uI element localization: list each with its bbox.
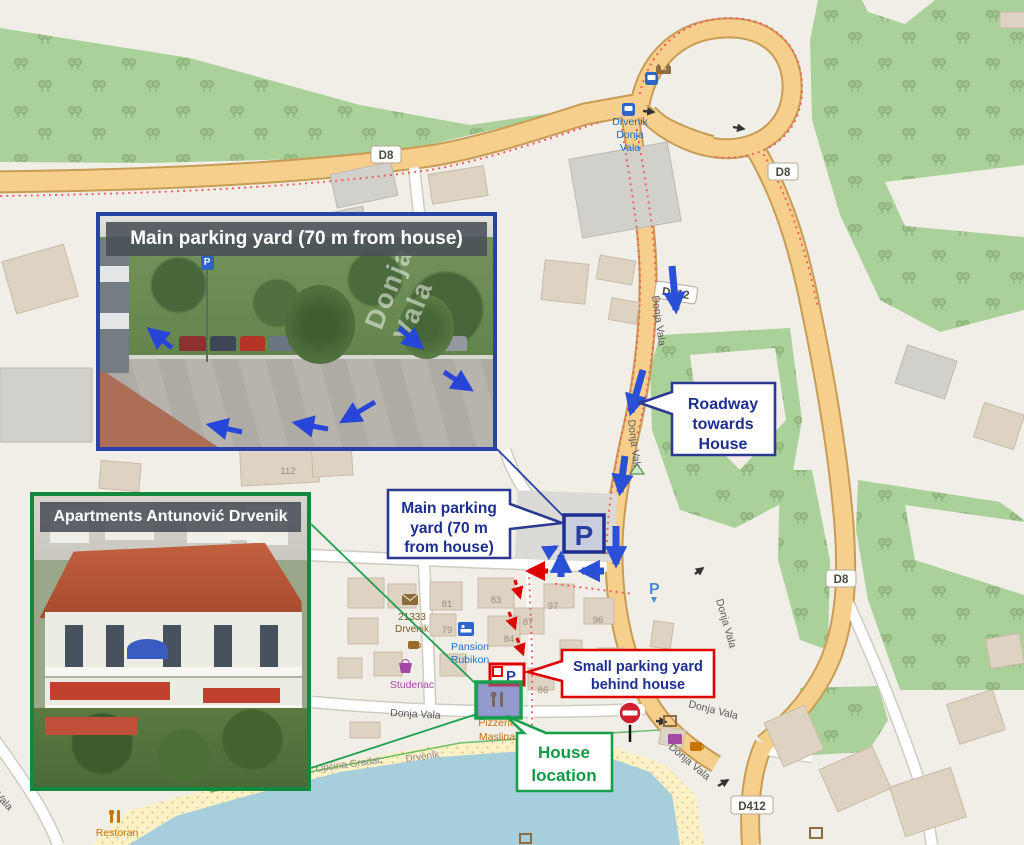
svg-text:Small parking yard: Small parking yard [573,659,703,675]
pansion-label: Pansion Rubikon [451,641,490,666]
svg-text:Vala: Vala [620,142,640,154]
post-office-icon [402,594,418,605]
photo-blue-umbrella [127,639,168,659]
svg-text:97: 97 [548,601,559,612]
svg-text:towards: towards [692,416,753,433]
house-location-marker [476,682,521,718]
svg-text:House: House [538,743,590,762]
svg-text:P: P [575,520,594,551]
restoran-label: Restoran [96,827,139,839]
svg-text:79: 79 [442,625,453,636]
main-parking-marker: P [564,515,604,552]
svg-text:Roadway: Roadway [688,396,758,413]
map-figure: D8 D8 D8 D412 D412 Donja Vala Donja Vala… [0,0,1024,845]
apartments-photo: Apartments Antunović Drvenik [30,492,311,791]
supermarket-label: Studenac [390,679,434,691]
cafe-icon [690,742,704,751]
photo-door [214,625,232,667]
cafe-icon [408,641,420,649]
svg-text:yard (70 m: yard (70 m [410,520,488,537]
svg-text:Drvenik: Drvenik [612,116,648,128]
svg-text:84: 84 [504,634,515,645]
svg-text:from house): from house) [404,539,494,556]
shield-d8-east: D8 [826,570,856,587]
svg-text:behind house: behind house [591,677,685,693]
svg-text:83: 83 [491,595,502,606]
shield-d412-south: D412 [731,796,773,814]
photo-balcony-rail [45,667,302,676]
svg-text:96: 96 [593,615,604,626]
svg-text:81: 81 [442,599,453,610]
photo-terrace-awning [45,717,138,734]
svg-text:86: 86 [538,685,549,696]
svg-text:Main parking: Main parking [401,500,497,517]
shield-d8-west: D8 [371,146,401,163]
svg-text:location: location [531,766,596,785]
svg-text:D412: D412 [738,801,766,813]
photo-door [65,625,83,667]
svg-text:House: House [699,436,748,453]
shop-icon [668,734,682,744]
svg-text:Donja: Donja [616,129,644,141]
svg-text:D8: D8 [379,150,394,162]
photo-roof [39,543,301,619]
shield-d8-north: D8 [768,163,798,180]
photo-door [106,625,124,667]
photo-door [260,625,278,667]
photo-title: Apartments Antunović Drvenik [40,502,301,532]
photo-title: Main parking yard (70 m from house) [106,222,487,256]
photo-awning [203,688,279,703]
photo-awning [50,682,170,699]
svg-text:112: 112 [280,466,295,477]
hotel-icon [458,622,474,636]
svg-text:Pansion: Pansion [451,641,489,653]
main-parking-photo: P Donja Vala Main parking yard (70 m fro… [96,212,497,451]
bus-stop-icon [622,103,635,116]
svg-text:87: 87 [523,617,534,628]
svg-text:Maslina: Maslina [479,731,515,743]
svg-text:D8: D8 [776,167,791,179]
svg-text:D8: D8 [834,574,849,586]
parking-map-symbol: P [649,581,660,598]
